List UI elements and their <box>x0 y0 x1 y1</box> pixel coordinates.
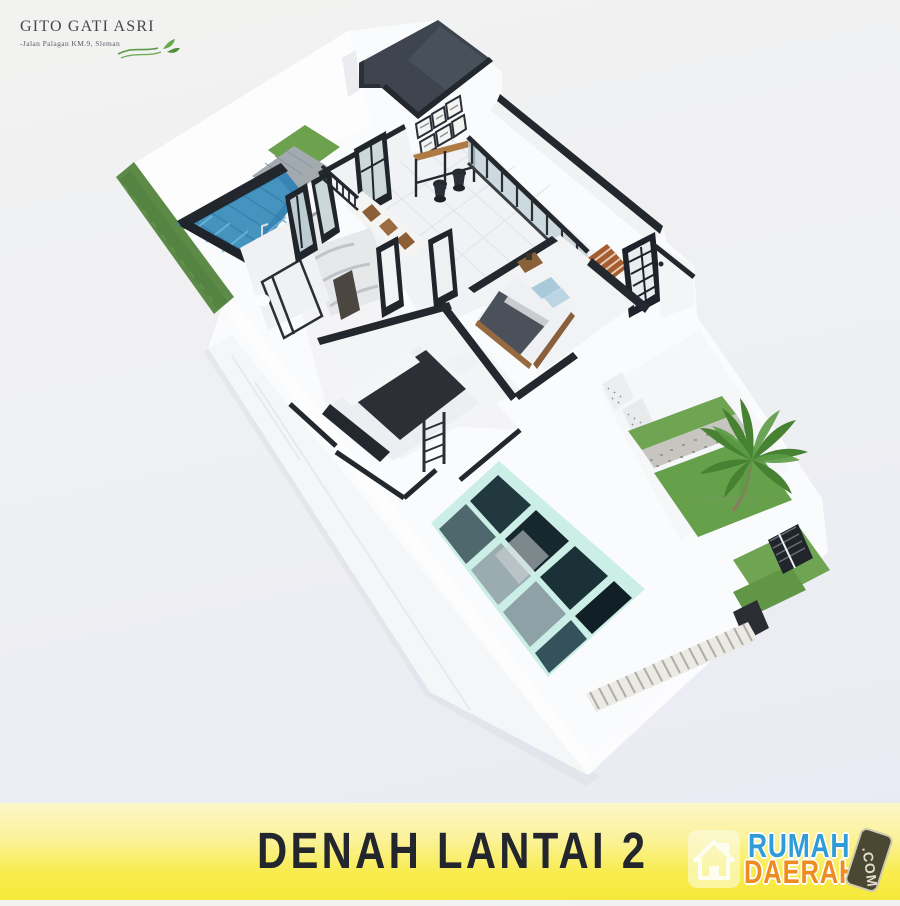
svg-text:BRILIAN STUDIO: BRILIAN STUDIO <box>702 496 754 503</box>
